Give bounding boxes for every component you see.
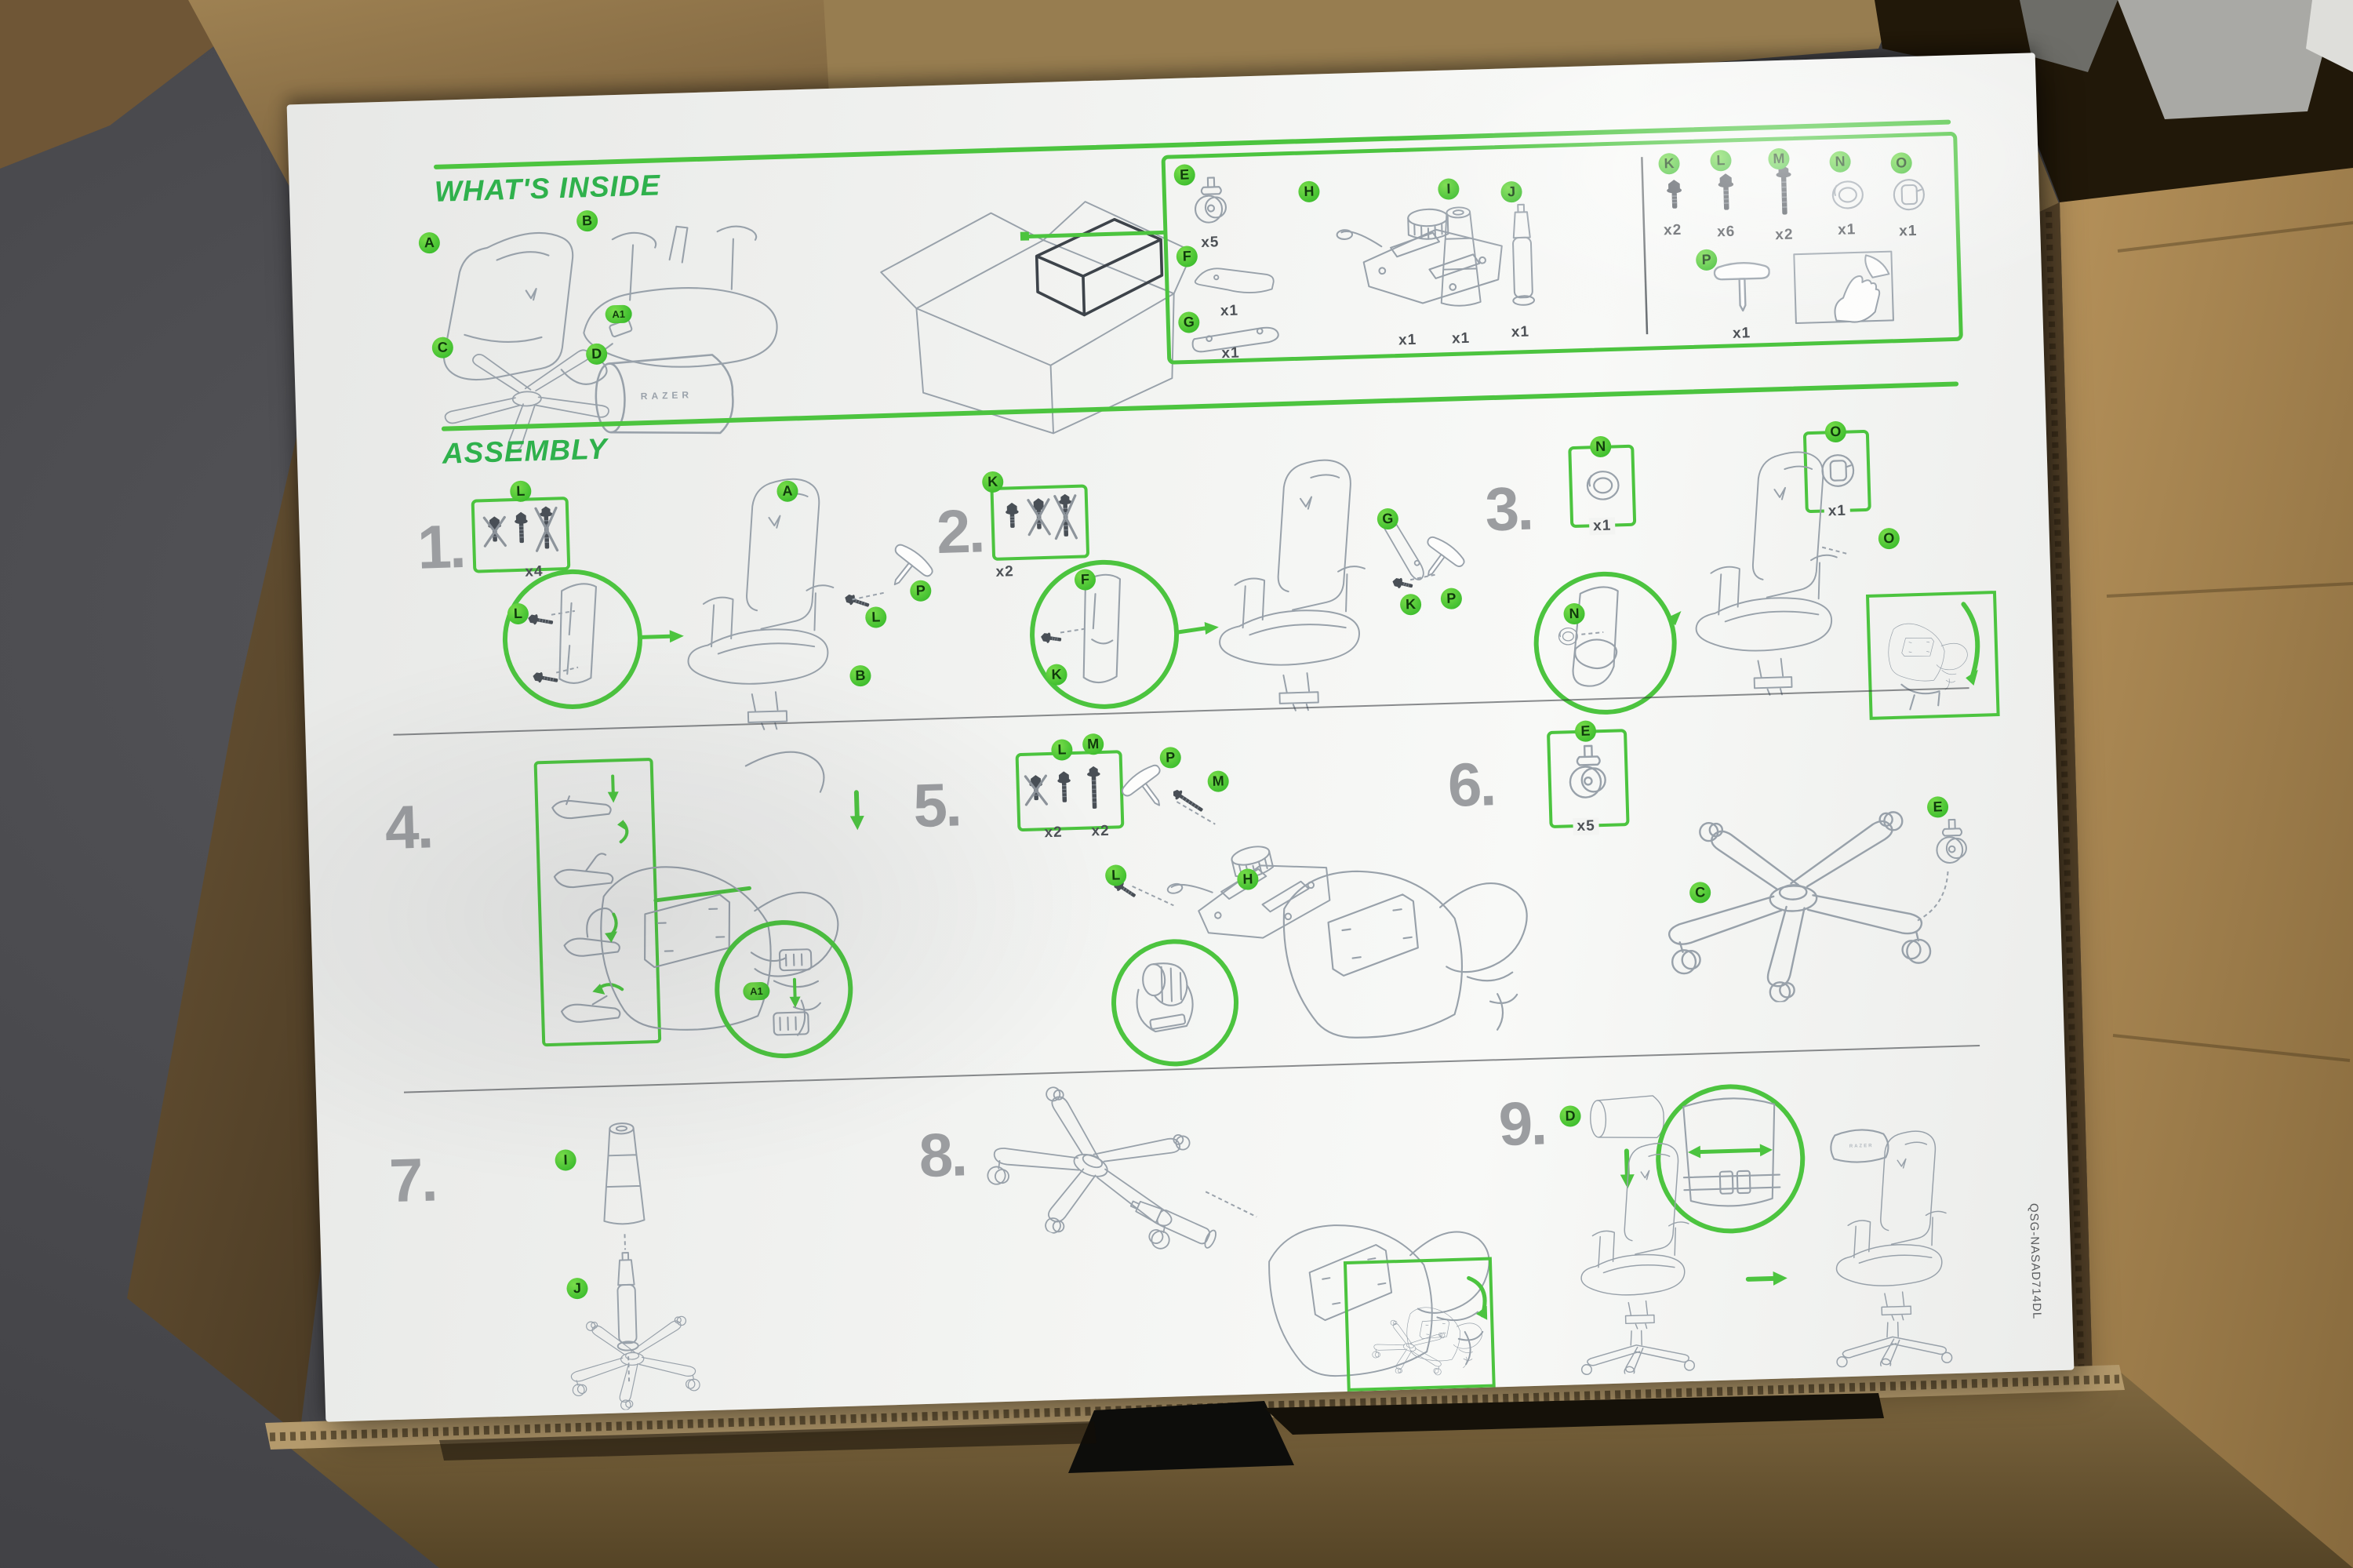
part-g-qty: x1	[1221, 345, 1240, 363]
step-5-badge-p: P	[1159, 747, 1181, 769]
step-6-number: 6.	[1447, 748, 1496, 821]
step-9-badge-d: D	[1559, 1105, 1581, 1127]
part-badge-c: C	[431, 337, 453, 358]
part-h-qty: x1	[1398, 332, 1417, 350]
part-d-print: RAZER	[641, 389, 693, 402]
step-6-box-badge-e: E	[1575, 720, 1597, 742]
step-6-badge-e: E	[1927, 796, 1949, 818]
part-o-qty: x1	[1899, 223, 1918, 241]
part-badge-f: F	[1176, 246, 1198, 267]
step-1-hw-badge-l: L	[510, 480, 532, 502]
part-badge-n: N	[1829, 151, 1851, 173]
step-4-number: 4.	[384, 791, 433, 864]
part-badge-j: J	[1500, 181, 1522, 203]
unboxing-photo-scene: WHAT'S INSIDE A A1 B C D RAZER E x5 F x1…	[0, 0, 2353, 1568]
step-5-qty-m: x2	[1091, 823, 1110, 841]
step-2-badge-g: G	[1377, 508, 1398, 530]
accessory-panel	[1163, 133, 1961, 362]
part-m-qty: x2	[1775, 227, 1794, 245]
step-2-hw-badge-k: K	[982, 471, 1004, 493]
whats-inside-title: WHAT'S INSIDE	[434, 169, 660, 209]
part-badge-h: H	[1298, 180, 1320, 202]
part-c-base-sketch	[443, 349, 609, 452]
part-p-qty: x1	[1733, 325, 1751, 343]
step-8-number: 8.	[918, 1119, 966, 1191]
step-6-qty-e: x5	[1573, 817, 1599, 835]
step-3-box-badge-o: O	[1824, 421, 1846, 443]
step-3-box-badge-n: N	[1590, 436, 1612, 458]
part-i-qty: x1	[1452, 330, 1471, 348]
part-badge-k: K	[1658, 153, 1680, 175]
part-badge-e: E	[1173, 164, 1195, 186]
step-9-number: 9.	[1497, 1087, 1546, 1160]
part-badge-l: L	[1710, 150, 1732, 172]
step-1-badge-l: L	[865, 606, 887, 628]
step-2-zoom-badge-f: F	[1075, 569, 1096, 591]
step-2-badge-k: K	[1400, 594, 1422, 616]
part-badge-m: M	[1768, 148, 1790, 170]
box-flap-right	[2036, 168, 2353, 1568]
step-2-number: 2.	[936, 495, 984, 568]
part-badge-a1: A1	[605, 305, 632, 324]
whats-inside-rule	[434, 120, 1951, 169]
part-d-headrest-sketch	[595, 355, 733, 437]
step-4-illustration	[535, 750, 871, 1063]
step-6-badge-c: C	[1689, 882, 1711, 904]
step-1-illustration	[472, 475, 940, 737]
step-4-zoom-badge-a1: A1	[743, 982, 770, 1001]
part-badge-g: G	[1178, 311, 1200, 333]
step-5-badge-m: M	[1207, 770, 1229, 792]
part-f-qty: x1	[1220, 303, 1239, 321]
part-e-qty: x5	[1201, 234, 1220, 252]
step-5-hw-badge-l: L	[1051, 739, 1073, 761]
part-a-backrest-sketch	[440, 231, 634, 389]
step-5-number: 5.	[912, 769, 961, 842]
part-k-qty: x2	[1664, 222, 1682, 240]
step-3-illustration	[1530, 427, 1998, 728]
step-7-badge-j: J	[566, 1278, 588, 1300]
part-badge-o: O	[1890, 152, 1912, 174]
part-l-qty: x6	[1717, 224, 1736, 242]
step-3-qty-n: x1	[1589, 517, 1616, 535]
step-2-zoom-badge-k: K	[1046, 664, 1067, 686]
step-5-badge-l: L	[1105, 864, 1127, 886]
step-1-badge-p: P	[910, 580, 932, 602]
step-9-headrest-print: RAZER	[1849, 1144, 1874, 1149]
step-5-badge-h: H	[1237, 868, 1259, 890]
part-badge-p: P	[1696, 249, 1718, 271]
step-3-zoom-badge-n: N	[1563, 603, 1585, 625]
step-6-illustration	[1548, 720, 1971, 1009]
step-7-illustration	[564, 1121, 700, 1411]
step-1-zoom-badge-l: L	[507, 603, 529, 625]
step-1-hw-qty: x4	[525, 563, 544, 581]
shipping-carton-sketch	[879, 198, 1198, 438]
poster-code: QSG-NASAD714DL	[2027, 1203, 2043, 1320]
step-2-badge-p: P	[1441, 588, 1463, 609]
step-3-qty-o: x1	[1824, 503, 1851, 521]
step-1-badge-b: B	[849, 665, 871, 687]
accessory-box-callout	[1020, 227, 1164, 240]
step-5-illustration	[1017, 740, 1543, 1068]
step-5-hw-badge-m: M	[1082, 733, 1104, 755]
step-2-illustration	[991, 456, 1472, 719]
step-7-badge-i: I	[555, 1149, 576, 1171]
part-j-qty: x1	[1511, 324, 1530, 342]
assembly-rule	[442, 381, 1958, 431]
part-badge-a: A	[418, 232, 440, 254]
row-separator-1	[393, 687, 1969, 736]
step-3-badge-o: O	[1878, 528, 1900, 550]
step-2-hw-qty: x2	[995, 563, 1014, 581]
step-1-badge-a: A	[776, 480, 798, 502]
step-7-number: 7.	[388, 1144, 437, 1217]
step-1-number: 1.	[416, 511, 465, 584]
step-9-illustration	[1573, 1080, 1952, 1377]
part-n-qty: x1	[1838, 221, 1857, 239]
step-3-number: 3.	[1484, 473, 1533, 546]
part-badge-b: B	[576, 210, 598, 232]
assembly-title: ASSEMBLY	[442, 433, 608, 471]
assembly-instruction-poster: WHAT'S INSIDE A A1 B C D RAZER E x5 F x1…	[287, 53, 2075, 1421]
part-b-seat-sketch	[580, 224, 778, 369]
row-separator-2	[404, 1045, 1980, 1093]
part-badge-i: I	[1438, 178, 1460, 200]
step-8-illustration	[971, 1058, 1507, 1404]
poster-line-art	[287, 53, 2075, 1421]
step-5-qty-l: x2	[1044, 824, 1063, 842]
part-badge-d: D	[586, 343, 608, 365]
